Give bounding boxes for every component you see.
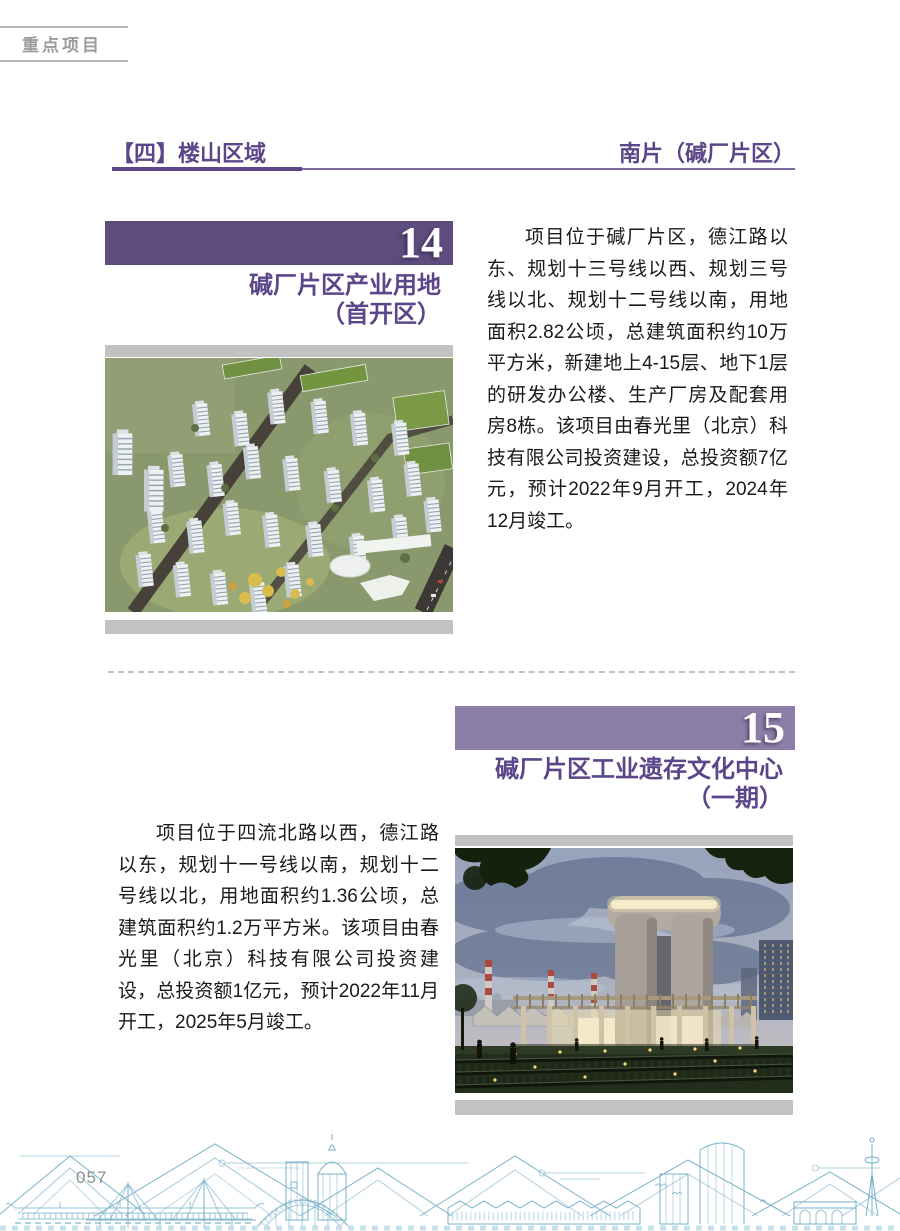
skyline-decoration xyxy=(0,1116,900,1231)
section-header: 【四】楼山区域 南片（碱厂片区） xyxy=(112,136,795,166)
project-14-number-bar: 14 xyxy=(105,221,453,265)
project-15-title-line1: 碱厂片区工业遗存文化中心 xyxy=(455,755,783,784)
page-number: 057 xyxy=(76,1168,107,1188)
project-15-title-line2: （一期） xyxy=(455,784,783,813)
aerial-render-illustration xyxy=(105,358,453,612)
section-underline-thin xyxy=(302,168,795,170)
section-subtitle: 南片（碱厂片区） xyxy=(619,136,795,168)
project-15-photo-top-bar xyxy=(455,835,793,846)
project-15-photo-bottom-bar xyxy=(455,1100,793,1115)
dashed-divider xyxy=(108,671,795,673)
running-head-label: 重点项目 xyxy=(22,36,102,55)
section-title: 【四】楼山区域 xyxy=(112,136,266,168)
project-15-number-bar: 15 xyxy=(455,706,795,750)
project-14-photo xyxy=(105,358,453,612)
project-14-number: 14 xyxy=(399,221,453,265)
document-page: 重点项目 【四】楼山区域 南片（碱厂片区） 14 碱厂片区产业用地 （首开区） xyxy=(0,0,900,1231)
project-15-number: 15 xyxy=(741,706,795,750)
project-15-title: 碱厂片区工业遗存文化中心 （一期） xyxy=(455,755,795,813)
project-14-description: 项目位于碱厂片区，德江路以东、规划十三号线以西、规划三号线以北、规划十二号线以南… xyxy=(487,222,788,537)
project-14-title-line1: 碱厂片区产业用地 xyxy=(105,271,441,300)
project-15-photo xyxy=(455,848,793,1093)
running-head: 重点项目 xyxy=(0,26,128,62)
project-14-photo-bottom-bar xyxy=(105,620,453,634)
project-14-title: 碱厂片区产业用地 （首开区） xyxy=(105,271,453,329)
project-14-photo-top-bar xyxy=(105,345,453,357)
project-14-title-line2: （首开区） xyxy=(105,300,441,329)
project-15-description: 项目位于四流北路以西，德江路以东，规划十一号线以南，规划十二号线以北，用地面积约… xyxy=(118,818,439,1039)
dusk-industrial-illustration xyxy=(455,848,793,1093)
section-underline-thick xyxy=(112,167,302,171)
